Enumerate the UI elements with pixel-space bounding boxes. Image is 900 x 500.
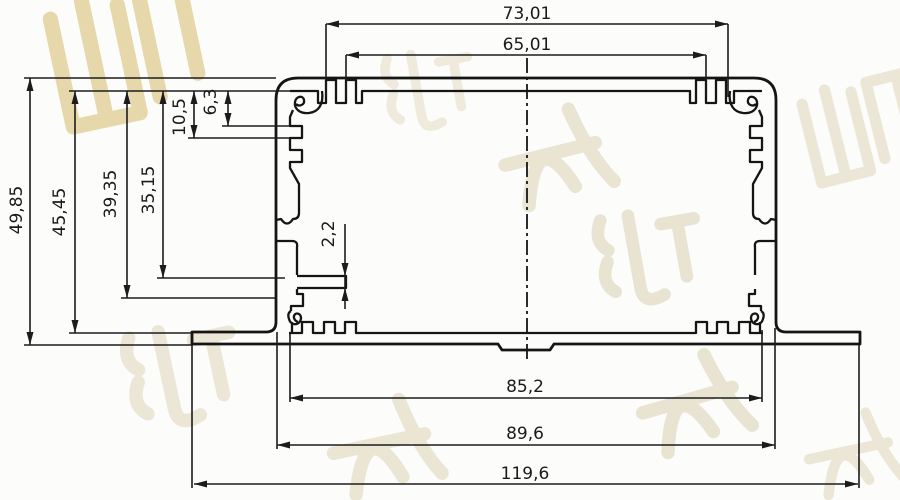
wall-face-right bbox=[750, 110, 776, 224]
inner-bottom-right bbox=[526, 322, 763, 333]
pcb-tab bbox=[297, 276, 346, 288]
dim-label-65-01: 65,01 bbox=[503, 35, 552, 55]
wall-face-lower-left bbox=[291, 289, 303, 311]
drawing-stage: 73,01 65,01 49,85 45,45 39,35 35,15 10,5… bbox=[0, 0, 900, 500]
profile-outer-contour bbox=[192, 78, 860, 350]
dim-label-2-2: 2,2 bbox=[319, 220, 339, 247]
dim-label-73-01: 73,01 bbox=[503, 4, 552, 24]
dim-label-89-6: 89,6 bbox=[506, 424, 544, 444]
screw-boss-bottom-edge-left bbox=[276, 241, 297, 275]
profile-ceiling-castellations bbox=[290, 80, 762, 103]
dim-line-63 bbox=[222, 91, 291, 126]
dim-label-35-15: 35,15 bbox=[139, 166, 159, 215]
dim-label-45-45: 45,45 bbox=[50, 188, 70, 237]
watermark-layer bbox=[48, 0, 900, 497]
wall-face-left bbox=[276, 110, 302, 224]
screw-boss-bottom-edge-right bbox=[755, 241, 776, 275]
dim-label-85-2: 85,2 bbox=[506, 377, 544, 397]
screw-channel-bottom-left bbox=[288, 311, 301, 332]
dim-label-49-85: 49,85 bbox=[7, 186, 27, 235]
screw-channel-bottom-right bbox=[751, 311, 764, 332]
dim-label-10-5: 10,5 bbox=[170, 98, 190, 136]
dim-label-119-6: 119,6 bbox=[501, 464, 550, 484]
dim-label-6-3: 6,3 bbox=[201, 88, 221, 115]
inner-wall-left bbox=[276, 91, 526, 333]
wall-face-lower-right bbox=[749, 289, 761, 311]
dim-label-39-35: 39,35 bbox=[101, 170, 121, 219]
inner-bottom-left bbox=[289, 322, 526, 333]
dimension-labels: 73,01 65,01 49,85 45,45 39,35 35,15 10,5… bbox=[7, 4, 551, 484]
aluminum-profile-drawing: 73,01 65,01 49,85 45,45 39,35 35,15 10,5… bbox=[0, 0, 900, 500]
